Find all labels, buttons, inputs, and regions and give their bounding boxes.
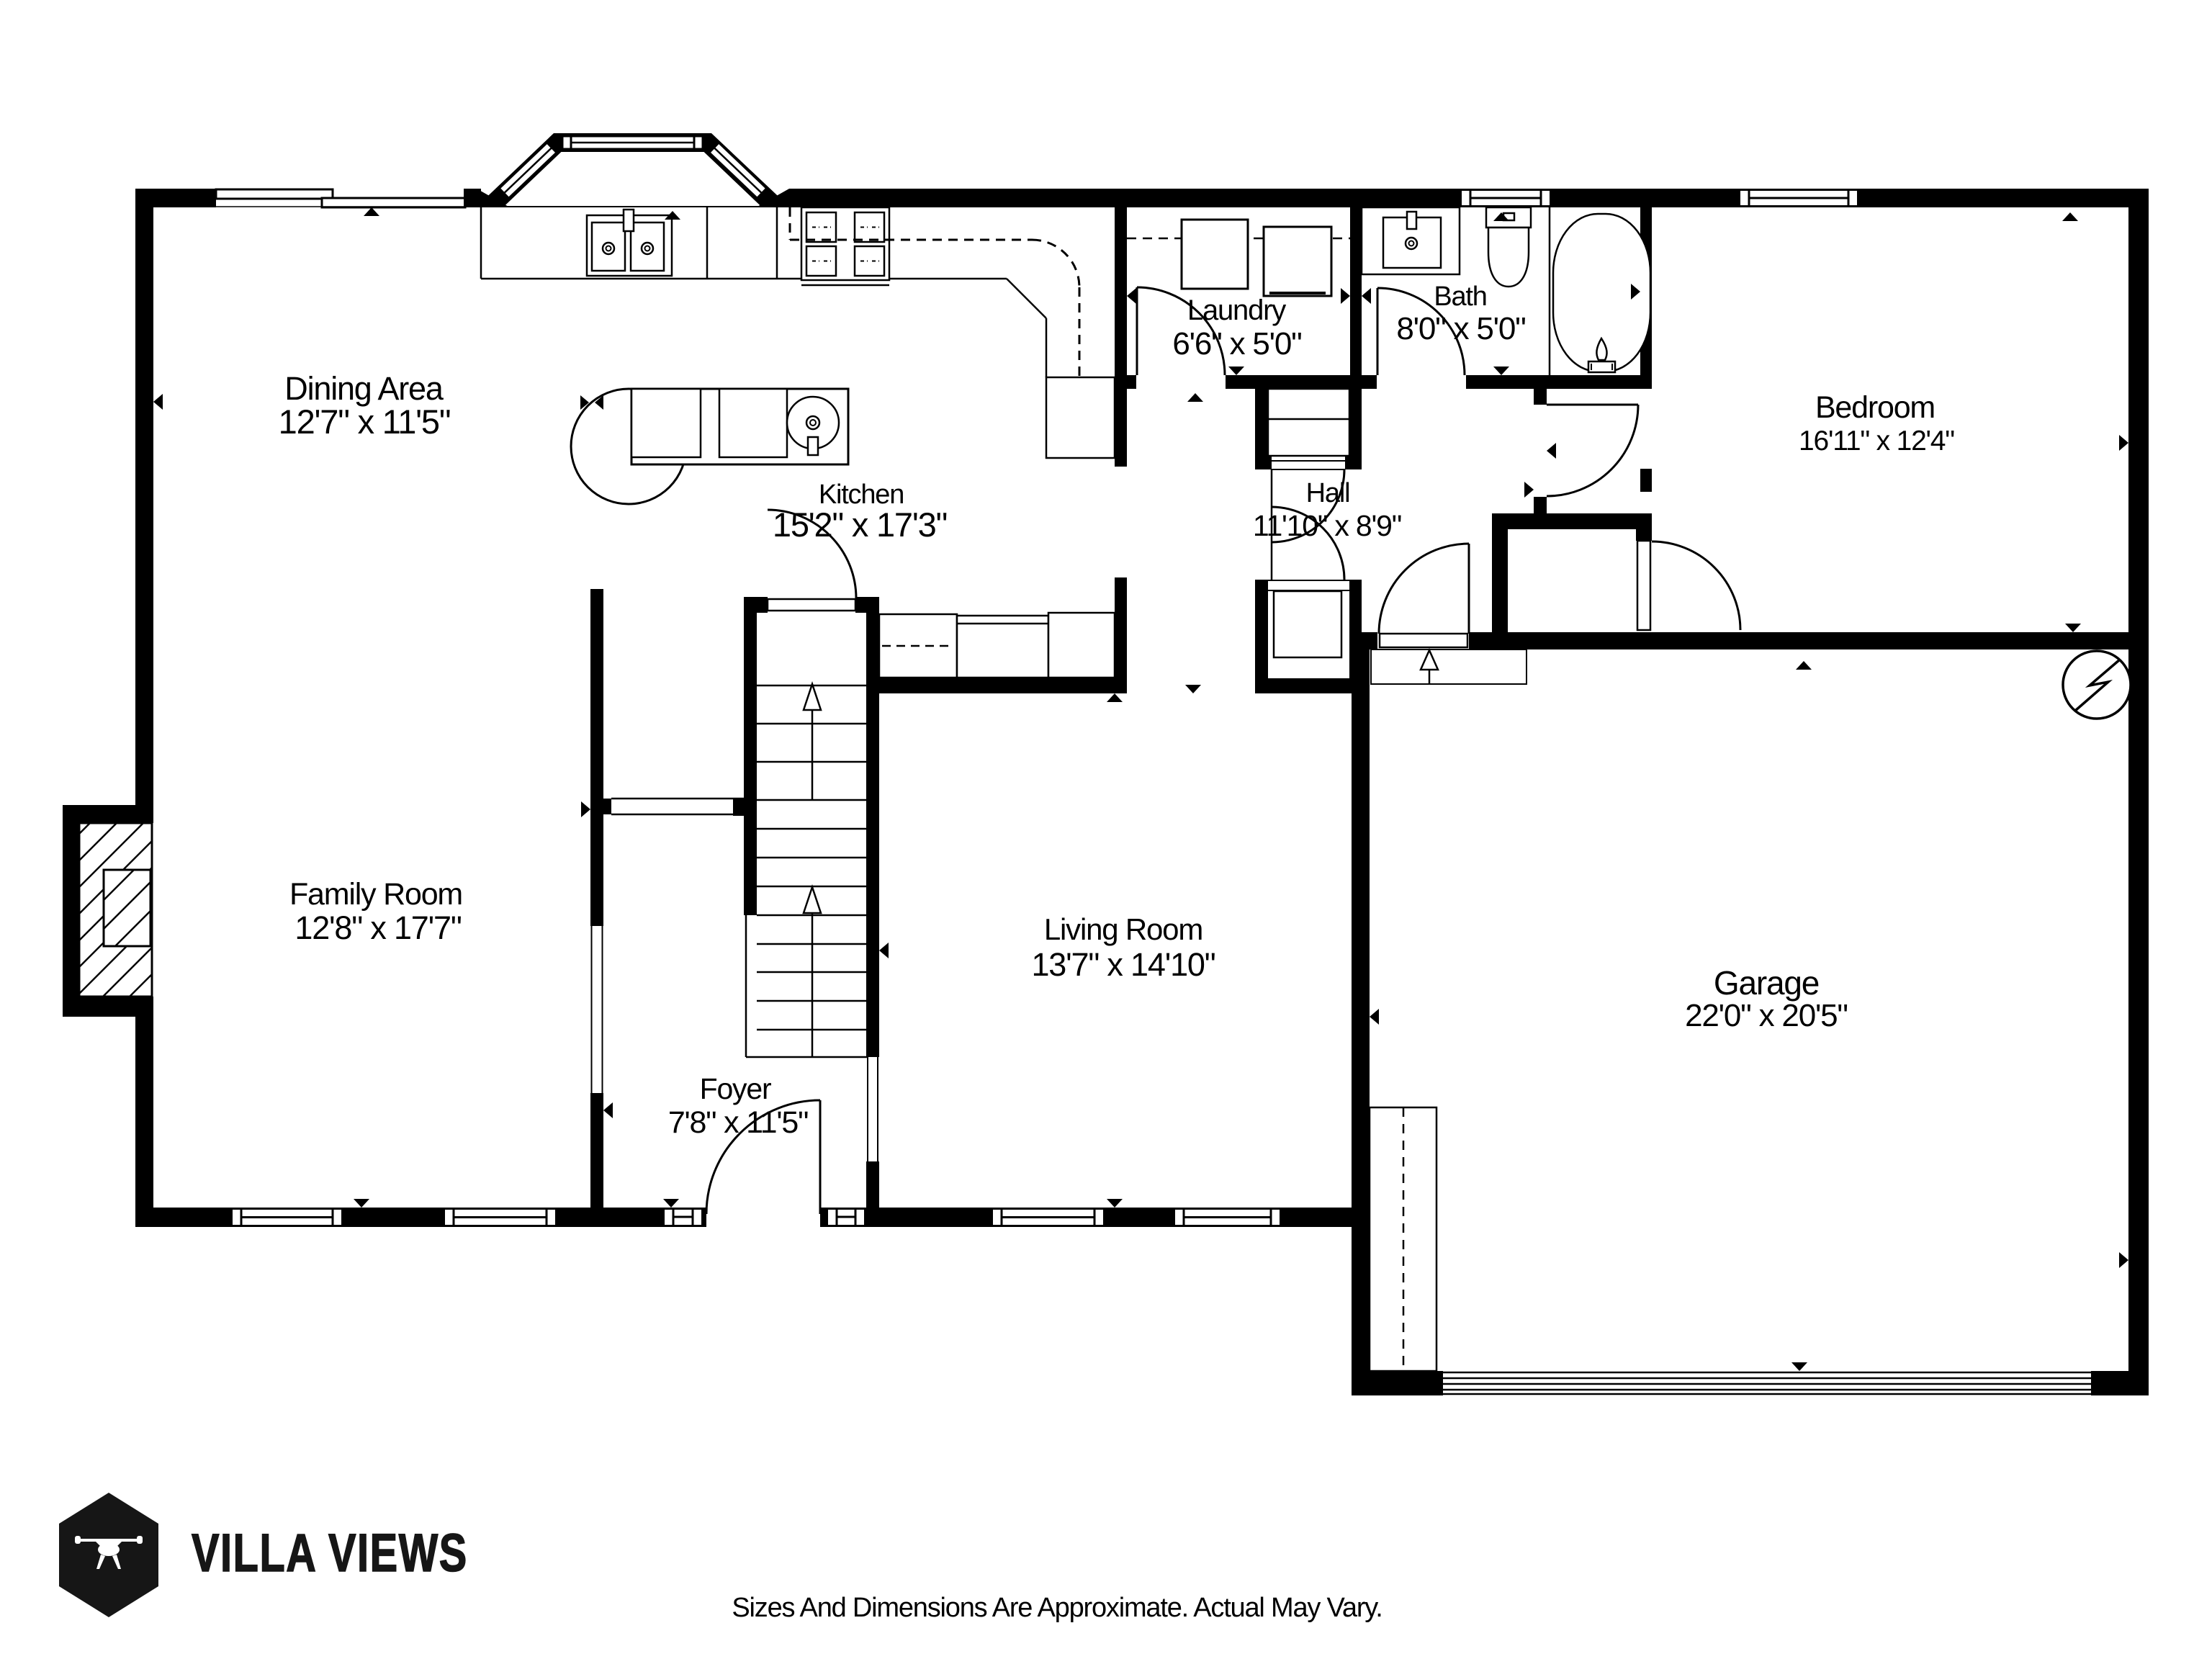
svg-text:Foyer: Foyer [700,1072,771,1105]
svg-text:12'8" x 17'7": 12'8" x 17'7" [295,909,461,946]
svg-text:Garage: Garage [1714,964,1819,1002]
svg-text:16'11" x 12'4": 16'11" x 12'4" [1799,426,1954,457]
svg-text:Bath: Bath [1434,282,1486,312]
svg-text:11'10" x 8'9": 11'10" x 8'9" [1253,509,1401,542]
svg-text:6'6" x 5'0": 6'6" x 5'0" [1172,326,1301,361]
svg-text:22'0" x 20'5": 22'0" x 20'5" [1685,998,1848,1033]
svg-text:Bedroom: Bedroom [1815,390,1935,425]
svg-text:Family Room: Family Room [289,877,462,912]
svg-text:Hall: Hall [1306,478,1350,508]
svg-text:8'0" x 5'0": 8'0" x 5'0" [1396,311,1525,346]
svg-text:VILLA VIEWS: VILLA VIEWS [192,1524,468,1583]
svg-text:Living Room: Living Room [1044,912,1202,946]
svg-text:12'7" x 11'5": 12'7" x 11'5" [279,403,451,441]
svg-text:15'2" x 17'3": 15'2" x 17'3" [773,505,947,544]
svg-text:13'7" x 14'10": 13'7" x 14'10" [1031,946,1215,983]
svg-text:Sizes And Dimensions Are Appro: Sizes And Dimensions Are Approximate. Ac… [732,1593,1382,1623]
svg-text:Laundry: Laundry [1187,295,1286,326]
svg-text:7'8" x 11'5": 7'8" x 11'5" [668,1105,808,1140]
svg-text:Dining Area: Dining Area [284,370,444,407]
